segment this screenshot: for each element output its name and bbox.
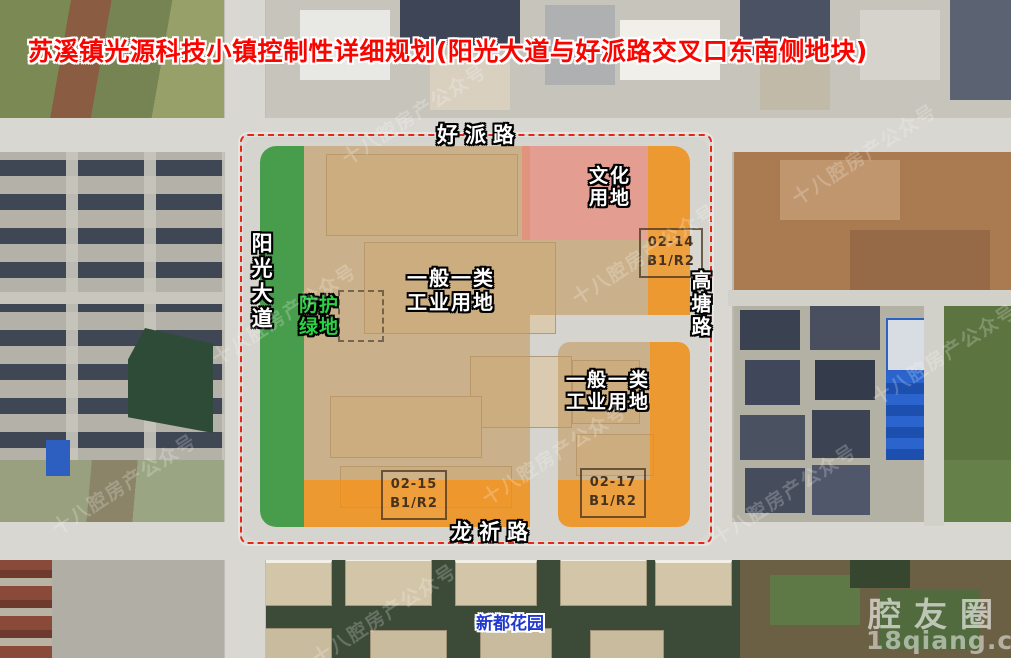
- zone-label-line: 一般一类: [563, 369, 653, 391]
- parcel-02-15-box: 02-15 B1/R2: [381, 470, 447, 520]
- zone-label-line: 一般一类: [403, 266, 499, 290]
- building-block: [812, 465, 870, 515]
- parcel-02-17-box: 02-17 B1/R2: [580, 468, 646, 518]
- apartment-building: [655, 560, 732, 606]
- building-block: [740, 310, 800, 350]
- road-label-gaotang: 高塘路: [688, 270, 711, 339]
- apartment-building: [370, 630, 447, 658]
- zone-green-buffer: [260, 146, 304, 527]
- zone-industrial-strip-se-east: [650, 342, 690, 527]
- building-block: [950, 0, 1011, 100]
- watermark-site-18qiang: 18qiang.com: [866, 626, 1011, 655]
- apartment-building: [345, 558, 432, 606]
- green-field-east: [944, 300, 1011, 460]
- green-field-east: [940, 460, 1011, 525]
- building-block: [745, 468, 805, 513]
- building-block: [740, 415, 805, 460]
- parcel-use: B1/R2: [589, 493, 637, 512]
- zone-label-green-buffer: 防护 绿地: [299, 294, 339, 338]
- construction-panel-blue: [46, 440, 70, 476]
- sub-parcel-outline: [338, 290, 384, 342]
- zone-label-line: 工业用地: [403, 290, 499, 314]
- zone-label-line: 用地: [589, 187, 631, 209]
- road-label-yangguang: 阳光大道: [249, 232, 273, 332]
- parcel-code: 02-17: [590, 474, 637, 493]
- parcel-code: 02-14: [648, 234, 695, 253]
- tree-cluster: [850, 558, 910, 588]
- building-block: [815, 360, 875, 400]
- apartment-building: [560, 558, 647, 606]
- apartment-building: [590, 630, 664, 658]
- redroof-houses-southwest: [0, 556, 52, 658]
- zone-label-line: 绿地: [299, 316, 339, 338]
- building-block: [812, 410, 870, 458]
- page-title: 苏溪镇光源科技小镇控制性详细规划(阳光大道与好派路交叉口东南侧地块): [28, 32, 868, 68]
- apartment-building: [260, 628, 332, 658]
- zone-label-line: 文化: [589, 165, 631, 187]
- parcel-use: B1/R2: [390, 495, 438, 514]
- road-east-vertical: [924, 290, 944, 526]
- zone-label-line: 防护: [299, 294, 339, 316]
- dirt-patch: [780, 160, 900, 220]
- zone-label-line: 工业用地: [563, 391, 653, 413]
- planning-map-screenshot: 02-14 B1/R2 02-15 B1/R2 02-17 B1/R2 好派路 …: [0, 0, 1011, 658]
- building-block: [745, 360, 800, 405]
- dirt-patch: [850, 230, 990, 290]
- vacant-lot-southwest: [0, 460, 224, 524]
- place-label-xindu-garden: 新都花园: [476, 609, 544, 634]
- road-label-longqi: 龙祈路: [451, 520, 535, 544]
- road-east-horizontal: [728, 290, 1011, 306]
- parcel-code: 02-15: [391, 476, 438, 495]
- zone-industrial-land-main-east: [530, 240, 648, 315]
- field-patch: [770, 575, 860, 625]
- road-label-haopai: 好派路: [437, 123, 521, 147]
- building-block: [860, 10, 940, 80]
- zone-label-industrial-main: 一般一类 工业用地: [403, 266, 499, 314]
- apartment-building: [455, 560, 537, 606]
- lot-gray-southwest: [52, 556, 228, 658]
- building-block: [810, 305, 880, 350]
- road-west-horizontal: [0, 292, 224, 304]
- pond: [128, 328, 213, 433]
- zone-label-culture: 文化 用地: [589, 165, 631, 209]
- zone-label-industrial-se: 一般一类 工业用地: [563, 369, 653, 413]
